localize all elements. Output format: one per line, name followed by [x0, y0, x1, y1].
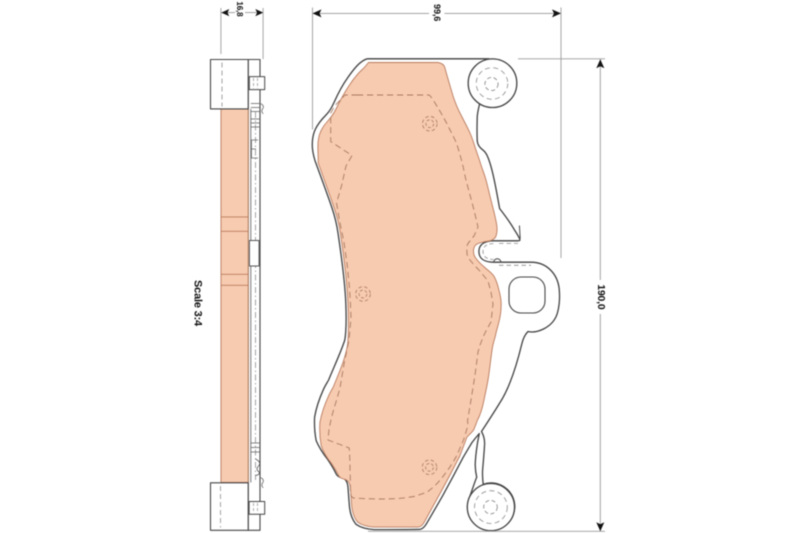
svg-text:Scale 3:4: Scale 3:4: [192, 280, 204, 327]
svg-text:16,8: 16,8: [235, 1, 244, 17]
svg-text:99,6: 99,6: [432, 4, 442, 21]
svg-text:190,0: 190,0: [595, 284, 606, 309]
